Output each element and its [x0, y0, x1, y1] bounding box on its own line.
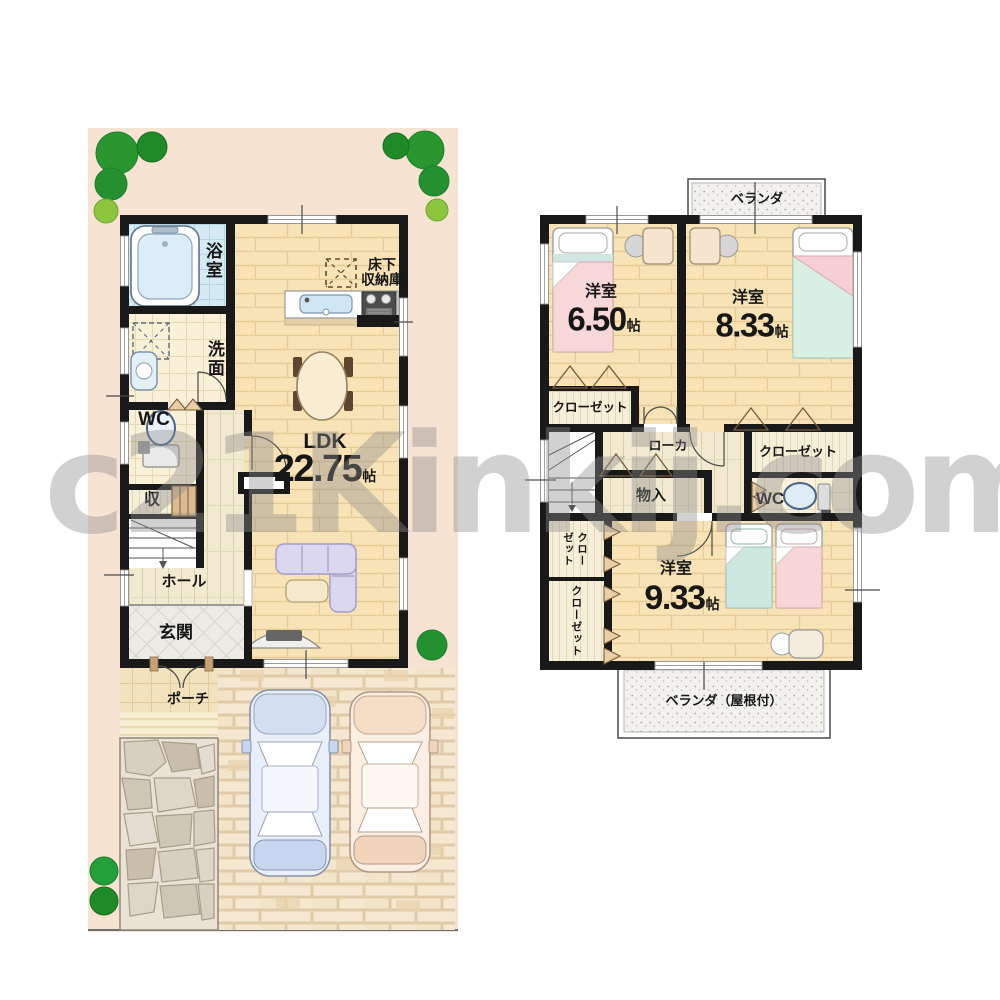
- ldk-size: 22.75 帖: [274, 450, 377, 490]
- floor1-plan: [88, 128, 458, 932]
- ldk-size-number: 22.75: [274, 450, 362, 490]
- storage2-label: 物入: [636, 488, 666, 504]
- underfloor-label: 床下 収納庫: [361, 257, 403, 286]
- room833-size-unit: 帖: [775, 325, 789, 340]
- room933-size-number: 9.33: [644, 581, 704, 617]
- room833-size-number: 8.33: [715, 309, 773, 344]
- side-table: [771, 630, 823, 658]
- approach-strip: [120, 712, 218, 738]
- room650-size-unit: 帖: [627, 319, 641, 334]
- room650-size-number: 6.50: [567, 303, 625, 338]
- room933-name: 洋室: [660, 562, 692, 579]
- corridor-label: ローカ: [648, 439, 687, 453]
- bathtub: [131, 226, 199, 306]
- porch-label: ポーチ: [167, 692, 209, 707]
- dining-table: [297, 352, 347, 420]
- wash-label: 洗面: [205, 340, 223, 378]
- underfloor-label-line2: 収納庫: [361, 272, 403, 287]
- wash-basin: [131, 352, 157, 390]
- room833-size: 8.33 帖: [715, 309, 788, 344]
- veranda-top-label: ベランダ: [731, 192, 783, 206]
- closet650-label: クローゼット: [552, 401, 627, 414]
- room833-name: 洋室: [732, 291, 764, 308]
- car-blue: [242, 690, 338, 876]
- stove: [362, 292, 396, 317]
- wc-label: WC: [138, 410, 170, 430]
- storage-label: 収: [144, 493, 160, 510]
- wc2-label: WC: [756, 490, 784, 508]
- closet933-lower-label: クローゼット: [569, 585, 581, 657]
- hall-label: ホール: [161, 574, 206, 590]
- underfloor-label-line1: 床下: [361, 257, 403, 272]
- bath-label: 浴室: [203, 242, 221, 280]
- veranda-bottom-label: ベランダ（屋根付）: [665, 694, 782, 708]
- ldk-size-unit: 帖: [362, 469, 376, 484]
- room650-size: 6.50 帖: [567, 303, 640, 338]
- closet833-label: クローゼット: [759, 445, 837, 459]
- room933-size: 9.33 帖: [644, 581, 719, 617]
- hall-ldk-opening: [244, 570, 252, 606]
- closet933-upper-label: クローゼット: [561, 527, 589, 571]
- entry-label: 玄関: [159, 624, 193, 642]
- room650-name: 洋室: [585, 285, 617, 302]
- room933-size-unit: 帖: [706, 597, 720, 612]
- floorplan-canvas: 浴室 洗面 WC 収 ホール 玄関 ポーチ 床下 収納庫 LDK 22.75 帖…: [0, 0, 1000, 1000]
- car-pink: [342, 692, 438, 872]
- bed-room833: [793, 228, 853, 358]
- coffee-table: [286, 580, 328, 602]
